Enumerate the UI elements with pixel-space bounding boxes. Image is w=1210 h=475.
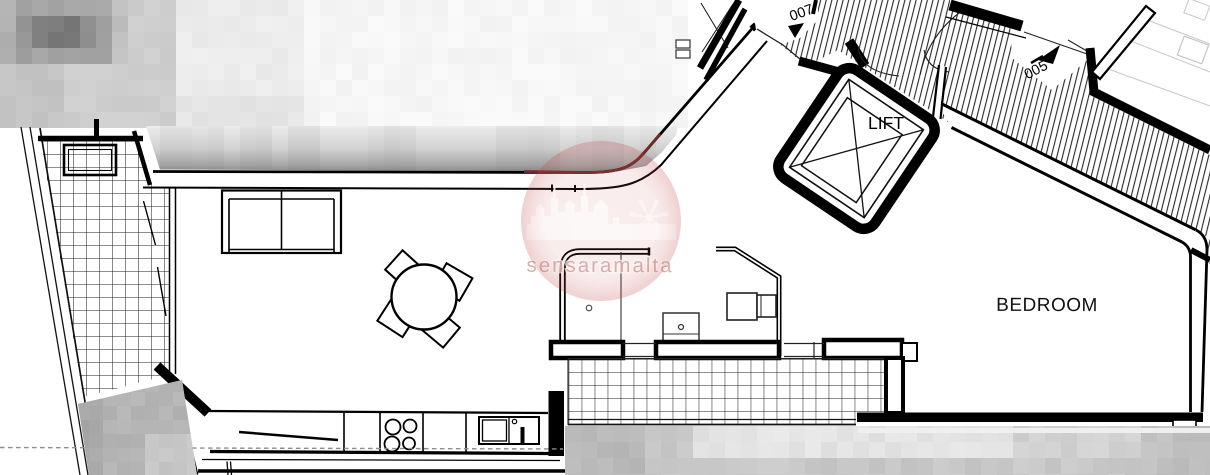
svg-text:BEDROOM: BEDROOM [996,295,1098,316]
svg-text:LIFT: LIFT [868,113,904,133]
